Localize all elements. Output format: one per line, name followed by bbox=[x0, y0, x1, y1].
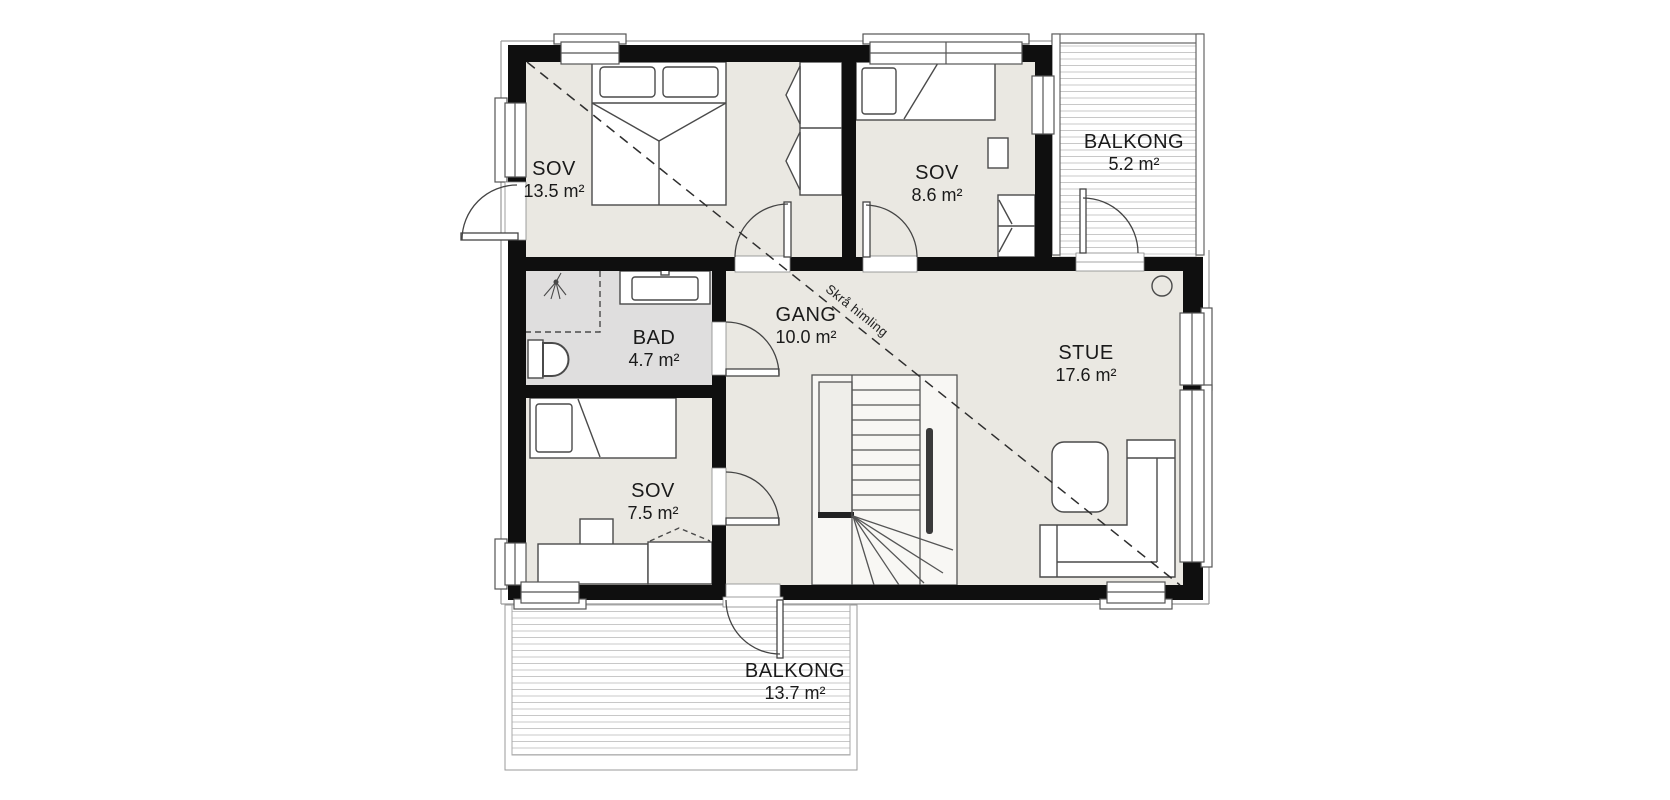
chair-icon bbox=[580, 519, 613, 545]
balcony-bottom bbox=[505, 605, 857, 770]
wall-bottom bbox=[508, 585, 1203, 600]
wardrobe-icon bbox=[998, 195, 1035, 257]
window-right-stue-a bbox=[1180, 313, 1204, 385]
armchair-icon bbox=[1052, 442, 1108, 512]
opening-bad bbox=[712, 322, 726, 375]
wall-bad-sov3 bbox=[520, 385, 712, 398]
double-bed-icon bbox=[592, 62, 726, 205]
balcony-top-rail bbox=[1052, 34, 1203, 43]
window-left-sov1 bbox=[505, 103, 526, 177]
floorplan-drawing bbox=[0, 0, 1670, 800]
window-sov2-balcony bbox=[1032, 76, 1054, 134]
balcony-left-rail bbox=[1052, 34, 1060, 255]
window-top-sov2 bbox=[870, 42, 1022, 64]
staircase bbox=[812, 375, 957, 585]
window-right-stue-b bbox=[1180, 390, 1204, 562]
window-left-sov3 bbox=[505, 543, 526, 585]
balcony-door-sill bbox=[723, 597, 783, 607]
wall-sov1-sov2 bbox=[842, 62, 856, 257]
toilet-icon bbox=[528, 340, 569, 378]
balcony-bottom-deck bbox=[512, 605, 850, 755]
balcony-right-rail bbox=[1196, 34, 1204, 255]
window-top-sov1 bbox=[561, 42, 619, 64]
sink-icon bbox=[620, 267, 710, 304]
floorplan-canvas: SOV 13.5 m² SOV 8.6 m² BALKONG 5.2 m² BA… bbox=[0, 0, 1670, 800]
desk-icon bbox=[538, 544, 648, 584]
single-bed-icon bbox=[856, 62, 995, 120]
balcony-top bbox=[1052, 34, 1204, 257]
stair-handrail bbox=[926, 428, 933, 534]
desk-icon bbox=[988, 138, 1008, 168]
single-bed-icon bbox=[530, 398, 676, 458]
window-bottom-stue bbox=[1107, 582, 1165, 603]
opening-exterior-left bbox=[505, 182, 526, 240]
opening-sov3 bbox=[712, 468, 726, 525]
opening-sov2 bbox=[863, 256, 917, 272]
window-bottom-sov3 bbox=[521, 582, 579, 603]
opening-sov1 bbox=[735, 256, 790, 272]
